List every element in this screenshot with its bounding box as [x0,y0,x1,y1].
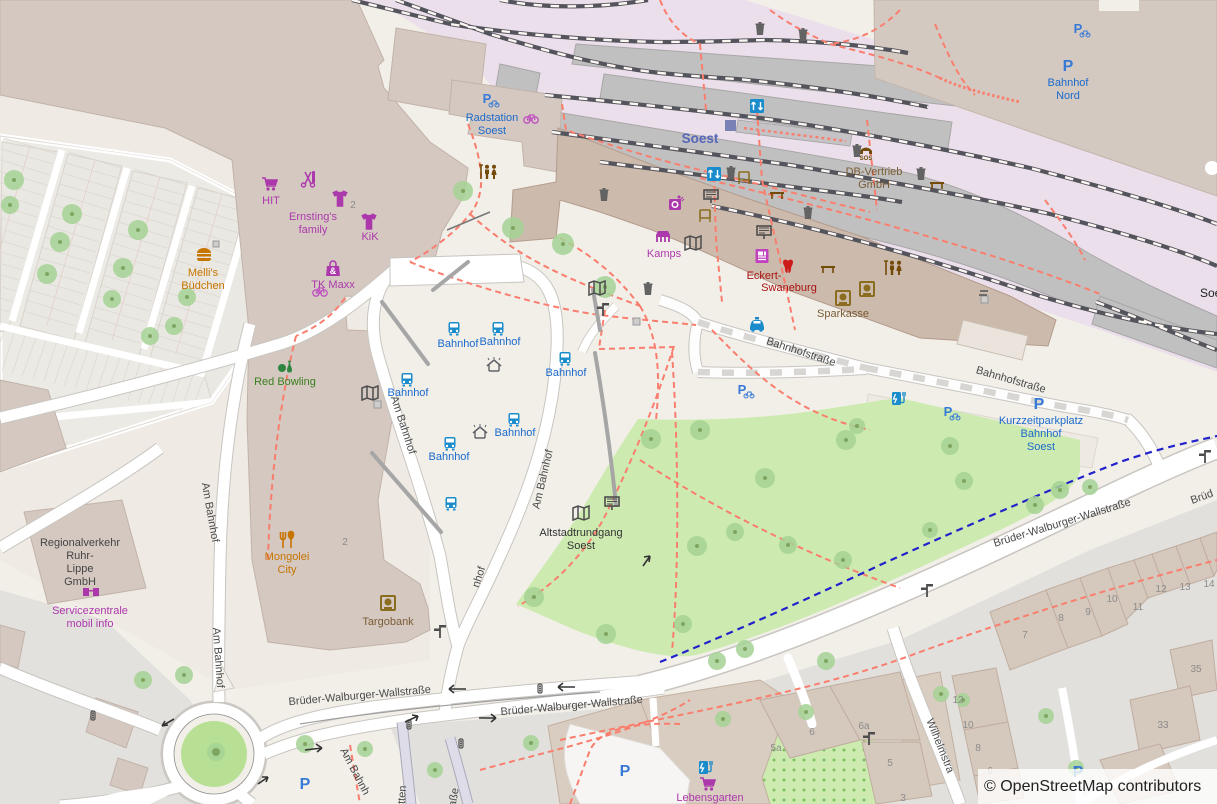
svg-text:35: 35 [1190,664,1202,675]
svg-text:Melli's: Melli's [188,267,219,279]
svg-text:Bahnhof: Bahnhof [1048,77,1090,89]
svg-text:Soest: Soest [1027,441,1055,453]
svg-text:KiK: KiK [361,231,379,243]
svg-text:11: 11 [1133,602,1144,613]
svg-text:mobil info: mobil info [66,618,113,630]
svg-text:12: 12 [1155,584,1167,595]
svg-text:Targobank: Targobank [362,616,414,628]
svg-text:HIT: HIT [262,195,280,207]
svg-text:City: City [278,564,297,576]
svg-text:Kurzzeitparkplatz: Kurzzeitparkplatz [999,415,1083,427]
svg-text:13: 13 [1179,582,1191,593]
svg-text:GmbH: GmbH [858,179,890,191]
svg-text:8: 8 [975,743,981,754]
svg-text:8: 8 [1058,613,1064,624]
svg-text:6: 6 [809,727,815,738]
svg-text:9: 9 [1085,607,1091,618]
svg-text:5a: 5a [770,743,782,754]
svg-text:Lippe: Lippe [67,563,94,575]
svg-text:Bahnhof: Bahnhof [495,427,537,439]
svg-text:Lebensgarten: Lebensgarten [676,792,743,804]
svg-text:6a: 6a [858,721,870,732]
svg-text:Sparkasse: Sparkasse [817,308,869,320]
svg-text:10: 10 [1106,594,1118,605]
svg-text:Bahnhof: Bahnhof [546,367,588,379]
svg-text:Nötten: Nötten [395,785,409,804]
svg-text:Bahnhof: Bahnhof [429,451,471,463]
svg-text:Nord: Nord [1056,90,1080,102]
svg-text:Regionalverkehr: Regionalverkehr [40,537,120,549]
svg-text:Servicezentrale: Servicezentrale [52,605,128,617]
svg-text:© OpenStreetMap contributors: © OpenStreetMap contributors [984,778,1201,795]
svg-text:Soes: Soes [1200,286,1217,300]
svg-text:Bahnhof: Bahnhof [480,336,522,348]
svg-text:Ruhr-: Ruhr- [66,550,94,562]
svg-text:2: 2 [350,200,356,211]
svg-text:12: 12 [952,695,964,706]
svg-text:Bahnhof: Bahnhof [438,338,480,350]
svg-text:Soest: Soest [682,131,719,146]
svg-text:GmbH: GmbH [64,576,96,588]
svg-text:Red Bowling: Red Bowling [254,376,316,388]
svg-text:Radstation: Radstation [466,112,519,124]
svg-text:7: 7 [1022,630,1028,641]
svg-text:2: 2 [342,537,348,548]
svg-text:Ernsting's: Ernsting's [289,211,337,223]
svg-text:Swaneburg: Swaneburg [761,282,817,294]
svg-text:14: 14 [1203,579,1215,590]
svg-text:33: 33 [1157,720,1169,731]
svg-text:DB-Vertrieb: DB-Vertrieb [846,166,903,178]
svg-text:Büdchen: Büdchen [181,280,224,292]
svg-text:Soest: Soest [478,125,506,137]
svg-text:3: 3 [900,793,906,804]
svg-text:5: 5 [887,758,893,769]
svg-text:Soest: Soest [567,540,595,552]
svg-text:Altstadtrundgang: Altstadtrundgang [539,527,622,539]
svg-text:10: 10 [962,720,974,731]
svg-text:Mongolei: Mongolei [265,551,310,563]
svg-text:Eckert-: Eckert- [747,270,782,282]
svg-text:Bahnhof: Bahnhof [1021,428,1063,440]
svg-text:family: family [299,224,328,236]
svg-text:Kamps: Kamps [647,248,682,260]
svg-text:TK Maxx: TK Maxx [311,279,355,291]
